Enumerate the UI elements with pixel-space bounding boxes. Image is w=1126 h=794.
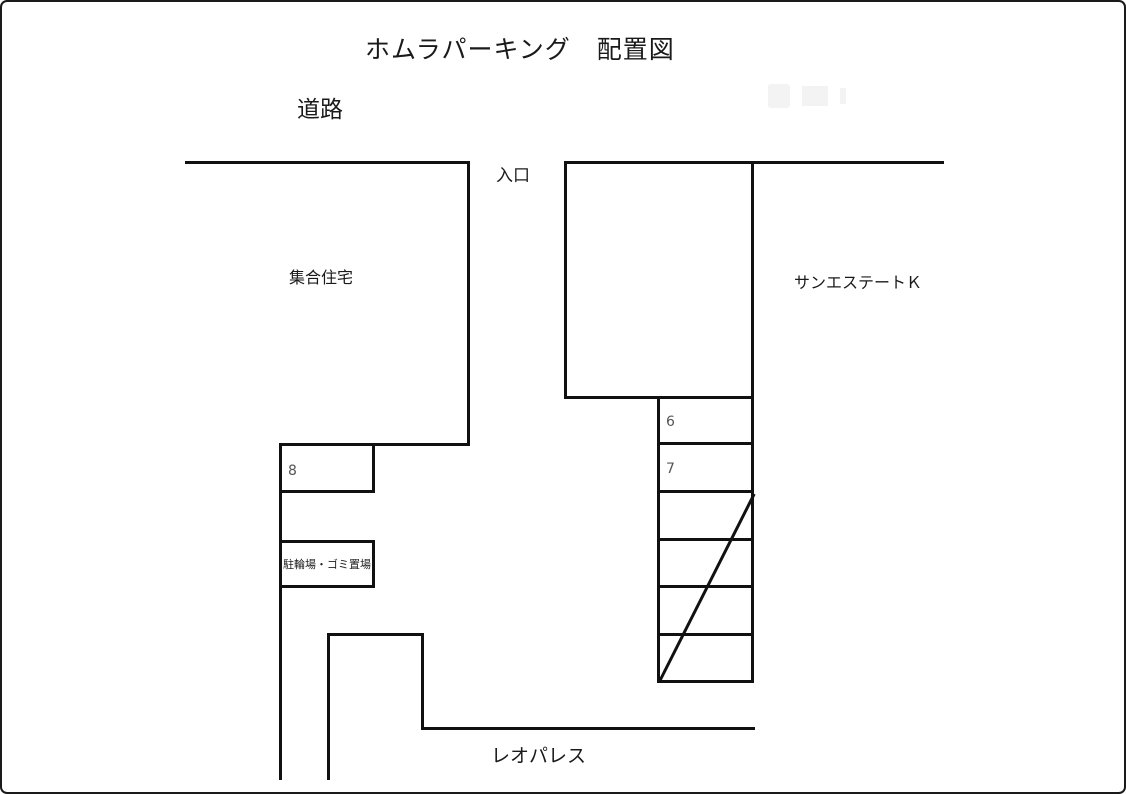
parking-column-bottom-line	[657, 680, 754, 683]
parking-spot-8-number: 8	[288, 463, 297, 479]
road-boundary-left-line	[185, 161, 470, 164]
parking-spot-7-number: 7	[666, 461, 675, 477]
scan-artifact	[768, 82, 860, 110]
parking-spot-6-number: 6	[666, 414, 675, 430]
parking-layout-page: ホムラパーキング 配置図 道路 入口 集合住宅 オーナー宅 サンエステートＫ レ…	[0, 0, 1126, 794]
parking-divider-2	[657, 490, 754, 493]
parking-divider-5	[657, 633, 754, 636]
apartment-label: 集合住宅	[289, 269, 353, 287]
leopalace-top-wall	[327, 633, 424, 636]
leopalace-label: レオパレス	[491, 746, 586, 768]
west-boundary-wall	[279, 443, 282, 780]
leopalace-left-wall	[327, 633, 330, 780]
parking-divider-3	[657, 538, 754, 541]
apartment-right-wall	[467, 161, 470, 446]
owner-house	[564, 161, 754, 399]
bicycle-garbage-area: 駐輪場・ゴミ置場	[279, 540, 375, 588]
road-label: 道路	[297, 97, 343, 123]
parking-spot-8: 8	[279, 443, 375, 493]
bicycle-garbage-label: 駐輪場・ゴミ置場	[282, 543, 372, 585]
parking-divider-1	[657, 442, 754, 445]
parking-column-right-line	[751, 161, 754, 683]
sun-estate-label: サンエステートＫ	[794, 274, 922, 292]
leopalace-boundary-line	[421, 727, 755, 730]
leopalace-inner-wall	[421, 633, 424, 730]
diagram-title: ホムラパーキング 配置図	[365, 36, 675, 65]
entrance-label: 入口	[496, 167, 530, 187]
